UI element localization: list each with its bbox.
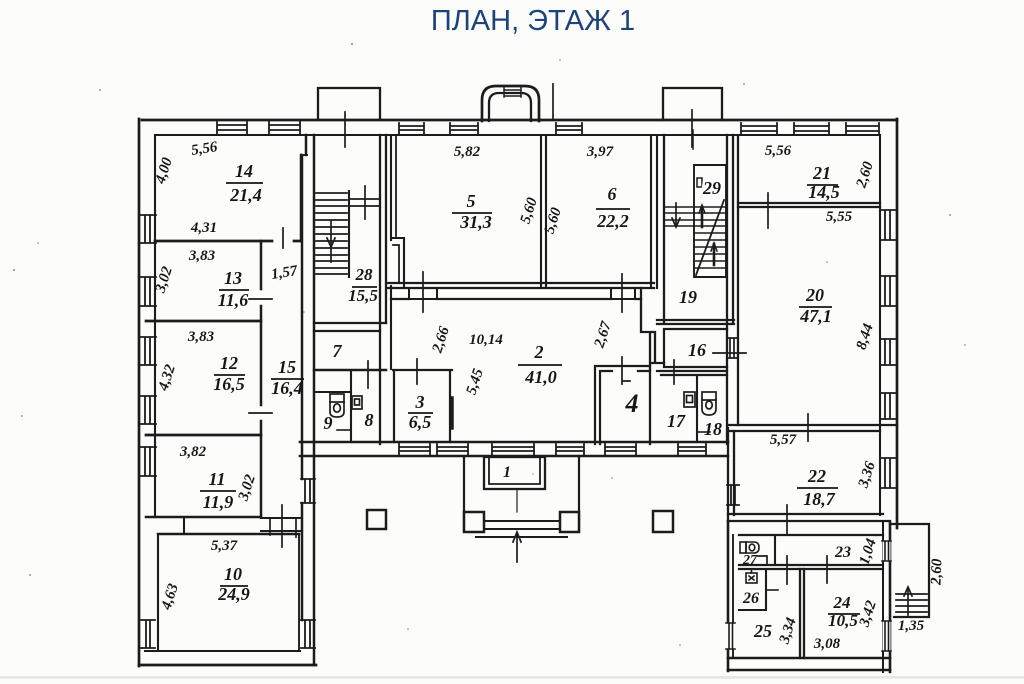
svg-text:10,5: 10,5 [828,611,858,630]
svg-text:5: 5 [467,191,476,211]
svg-text:3: 3 [415,392,425,412]
svg-text:21: 21 [812,163,831,183]
svg-text:2,60: 2,60 [929,558,946,586]
svg-text:10: 10 [224,564,242,584]
svg-text:11,9: 11,9 [203,492,234,512]
svg-text:3,82: 3,82 [179,444,207,460]
svg-text:6,5: 6,5 [409,412,432,432]
svg-text:16: 16 [688,340,706,360]
svg-text:9: 9 [324,413,333,433]
svg-text:16,5: 16,5 [213,374,245,394]
svg-text:18: 18 [704,419,722,439]
svg-text:13: 13 [224,268,242,288]
svg-text:4,31: 4,31 [190,220,217,236]
svg-text:1: 1 [503,464,511,481]
svg-text:11: 11 [208,469,225,489]
svg-text:16,4: 16,4 [271,378,303,398]
svg-text:12: 12 [220,353,238,373]
svg-text:19: 19 [679,287,697,307]
svg-text:26: 26 [742,590,759,607]
svg-text:25: 25 [753,621,772,641]
svg-text:14,5: 14,5 [808,182,840,202]
svg-text:17: 17 [667,411,686,431]
svg-text:5,55: 5,55 [826,209,853,225]
svg-text:5,57: 5,57 [770,432,797,448]
svg-text:23: 23 [834,544,851,561]
svg-text:41,0: 41,0 [524,367,557,387]
svg-text:20: 20 [805,285,824,305]
svg-text:8: 8 [365,410,374,430]
svg-text:5,56: 5,56 [765,143,792,159]
svg-text:4: 4 [625,389,639,418]
svg-text:14: 14 [235,161,253,181]
svg-text:24,9: 24,9 [217,584,250,604]
svg-text:3,08: 3,08 [813,636,841,652]
svg-text:ПЛАН, ЭТАЖ 1: ПЛАН, ЭТАЖ 1 [431,5,635,37]
svg-text:3,83: 3,83 [187,329,215,345]
svg-text:2: 2 [534,342,544,362]
svg-text:3,83: 3,83 [188,248,216,264]
svg-text:11,6: 11,6 [218,290,249,310]
svg-text:47,1: 47,1 [799,306,832,326]
svg-text:7: 7 [333,341,343,361]
svg-text:5,82: 5,82 [454,144,481,160]
svg-text:15,5: 15,5 [348,286,378,305]
svg-text:6: 6 [608,184,617,204]
svg-text:18,7: 18,7 [803,489,836,509]
svg-text:24: 24 [833,593,851,612]
svg-text:31,3: 31,3 [459,212,492,232]
svg-text:22: 22 [807,466,826,486]
svg-text:15: 15 [278,357,296,377]
svg-text:1,35: 1,35 [898,618,925,634]
svg-text:10,14: 10,14 [469,332,503,348]
svg-text:22,2: 22,2 [596,211,629,231]
svg-text:28: 28 [355,265,374,284]
svg-text:29: 29 [702,178,721,198]
svg-text:3,97: 3,97 [586,144,614,160]
svg-text:21,4: 21,4 [229,185,262,205]
svg-text:27: 27 [742,553,758,568]
svg-text:5,37: 5,37 [211,538,238,554]
